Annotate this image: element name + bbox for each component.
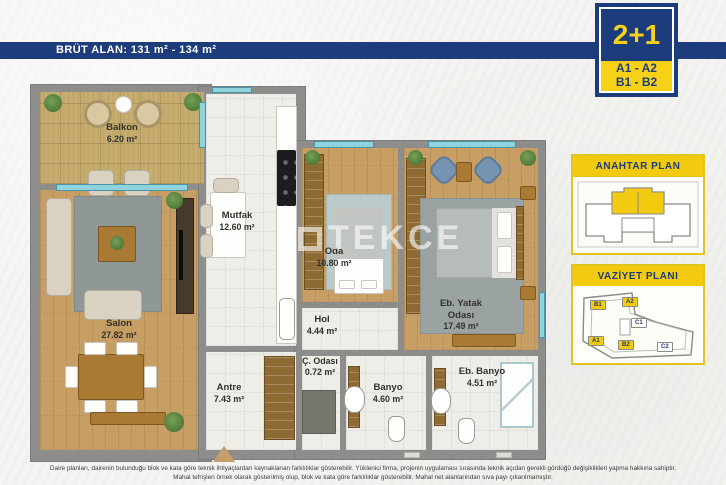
floor-plan-page: BRÜT ALAN: 131 m² - 134 m² 2+1 A1 - A2 B… (0, 0, 726, 485)
plant-icon (305, 150, 320, 165)
label-hol: Hol 4.44 m² (282, 314, 362, 336)
armchair (88, 170, 114, 196)
plant-icon (166, 192, 183, 209)
site-building-c1: C1 (631, 318, 647, 328)
key-plan-header: ANAHTAR PLAN (573, 156, 703, 176)
sofa (46, 198, 72, 296)
window-banyo-bottom (404, 452, 420, 458)
banyo-toilet (388, 416, 405, 442)
dining-table (78, 354, 144, 400)
key-plan-panel: ANAHTAR PLAN (571, 154, 705, 255)
unit-type-text: 2+1 (613, 19, 661, 51)
label-antre: Antre 7.43 m² (189, 382, 269, 404)
window-eb-yatak-right (539, 292, 545, 338)
unit-blocks: A1 - A2 B1 - B2 (601, 61, 672, 91)
pillow (497, 246, 512, 273)
nightstand (520, 286, 536, 300)
unit-blocks-line2: B1 - B2 (616, 76, 657, 90)
plant-icon (110, 236, 124, 250)
label-salon: Salon 27.82 m² (59, 318, 179, 340)
tv (179, 230, 183, 280)
disclaimer: Daire planları, dairenin bulunduğu blok … (0, 464, 726, 483)
bedroom-side-table (456, 162, 472, 182)
gross-area-label: BRÜT ALAN: 131 m² - 134 m² (56, 44, 216, 56)
site-building-b1: B1 (590, 300, 606, 310)
label-mutfak: Mutfak 12.60 m² (197, 210, 277, 232)
eb-banyo-toilet (458, 418, 475, 444)
window-eb-yatak-top (428, 141, 516, 148)
window-oda-top (314, 141, 374, 148)
tekce-watermark-text: TEKCE (328, 219, 463, 258)
nightstand (520, 186, 536, 200)
key-plan-title: ANAHTAR PLAN (596, 161, 681, 172)
label-eb-banyo: Eb. Banyo 4.51 m² (442, 366, 522, 388)
pillow (497, 212, 512, 239)
disclaimer-line2: Mahal tefrişleri örnek olarak gösterilmi… (0, 473, 726, 482)
window-eb-banyo-bottom (496, 452, 512, 458)
dining-chair (84, 342, 106, 355)
balcony-table (115, 96, 132, 113)
pillow (339, 280, 355, 289)
window-mutfak-top (212, 87, 252, 93)
headboard (516, 206, 524, 280)
key-plan-building-outline (576, 180, 700, 249)
kitchen-chair (200, 234, 213, 258)
plant-icon (520, 150, 536, 166)
shaft (302, 390, 336, 434)
armchair (124, 170, 150, 196)
cooktop (277, 150, 296, 206)
window-mutfak-left (199, 102, 206, 148)
plant-icon (408, 150, 423, 165)
dining-chair (116, 342, 138, 355)
loveseat (84, 290, 142, 320)
dining-chair (65, 366, 78, 388)
site-plan-panel: VAZİYET PLANI B1 A2 C1 A1 B2 C2 (571, 264, 705, 365)
unit-blocks-line1: A1 - A2 (616, 62, 657, 76)
site-building-a1: A1 (588, 336, 604, 346)
tekce-logo-icon (298, 227, 322, 251)
site-plan-header: VAZİYET PLANI (573, 266, 703, 286)
site-building-b2: B2 (618, 340, 634, 350)
site-building-a2: A2 (622, 297, 638, 307)
plant-icon (44, 94, 62, 112)
site-plan-title: VAZİYET PLANI (598, 271, 679, 282)
site-building-c2: C2 (657, 342, 673, 352)
label-balkon: Balkon 6.20 m² (62, 122, 182, 144)
kitchen-chair (213, 178, 239, 193)
plant-icon (164, 412, 184, 432)
dining-chair (144, 366, 157, 388)
bedroom-bench (452, 334, 516, 347)
tekce-watermark: TEKCE (298, 219, 463, 258)
window-balkon-salon (56, 184, 188, 191)
unit-type-badge: 2+1 A1 - A2 B1 - B2 (595, 3, 678, 97)
label-banyo: Banyo 4.60 m² (353, 382, 423, 404)
key-plan-drawing (573, 176, 703, 253)
disclaimer-line1: Daire planları, dairenin bulunduğu blok … (0, 464, 726, 473)
label-c-odasi: Ç. Odası 0.72 m² (286, 356, 354, 377)
eb-banyo-sink (431, 388, 451, 414)
label-eb-yatak-odasi: Eb. Yatak Odası 17.49 m² (426, 298, 496, 332)
unit-type-value: 2+1 (601, 9, 672, 61)
pillow (361, 280, 377, 289)
bench (90, 412, 166, 425)
entrance-arrow-icon (213, 446, 235, 462)
site-plan-drawing: B1 A2 C1 A1 B2 C2 (573, 286, 703, 363)
